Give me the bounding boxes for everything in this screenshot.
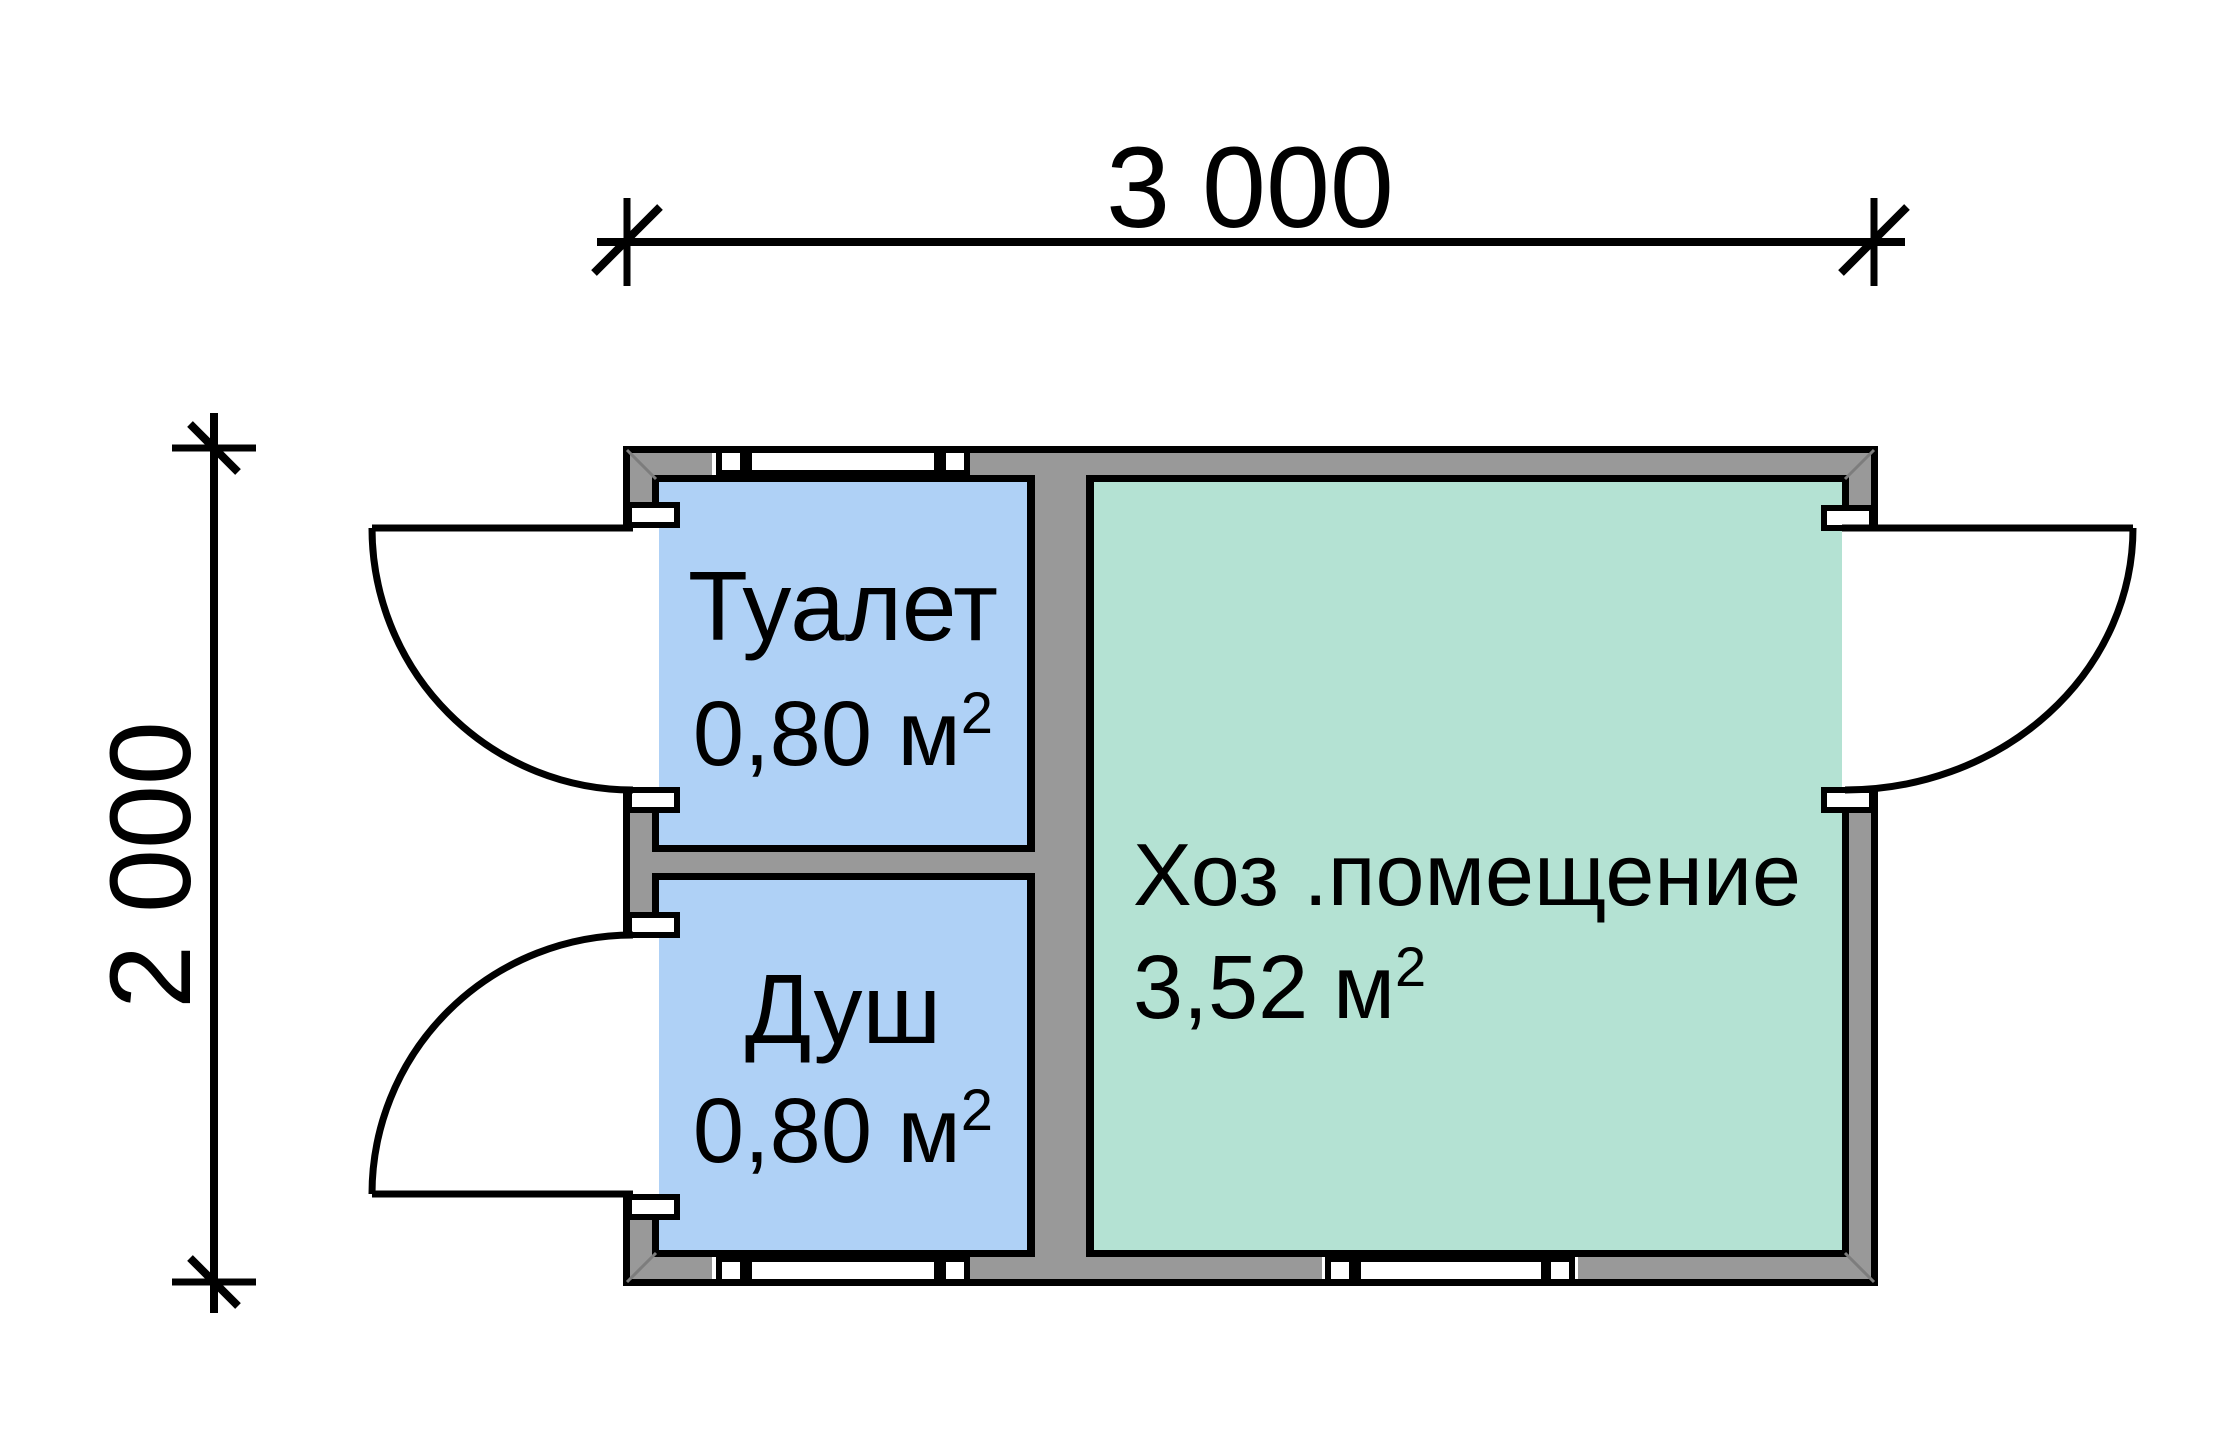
- door-toilet-swing: [372, 528, 633, 790]
- window-shower-bottom: [719, 1259, 967, 1282]
- room-toilet-area: 0,80 м2: [693, 681, 993, 785]
- window-toilet-top: [719, 450, 967, 473]
- room-utility-label: Хоз .помещение: [1133, 825, 1801, 924]
- room-shower-label: Душ: [745, 954, 941, 1064]
- room-toilet-label: Туалет: [688, 551, 998, 661]
- room-utility-area: 3,52 м2: [1133, 935, 1426, 1038]
- floor-plan-page: 3 000 2 000 Туалет 0,80 м2 Душ 0,80 м2 Х…: [0, 0, 2225, 1432]
- room-shower-area: 0,80 м2: [693, 1078, 993, 1182]
- door-shower-swing: [372, 935, 633, 1194]
- window-utility-bottom: [1328, 1259, 1572, 1282]
- dimension-width-label: 3 000: [1106, 124, 1394, 252]
- floor-plan-svg: 3 000 2 000 Туалет 0,80 м2 Душ 0,80 м2 Х…: [0, 0, 2225, 1432]
- dimension-height-label: 2 000: [87, 721, 215, 1009]
- room-toilet-floor: [659, 482, 1027, 850]
- partition-wall-horizontal: [637, 845, 1042, 880]
